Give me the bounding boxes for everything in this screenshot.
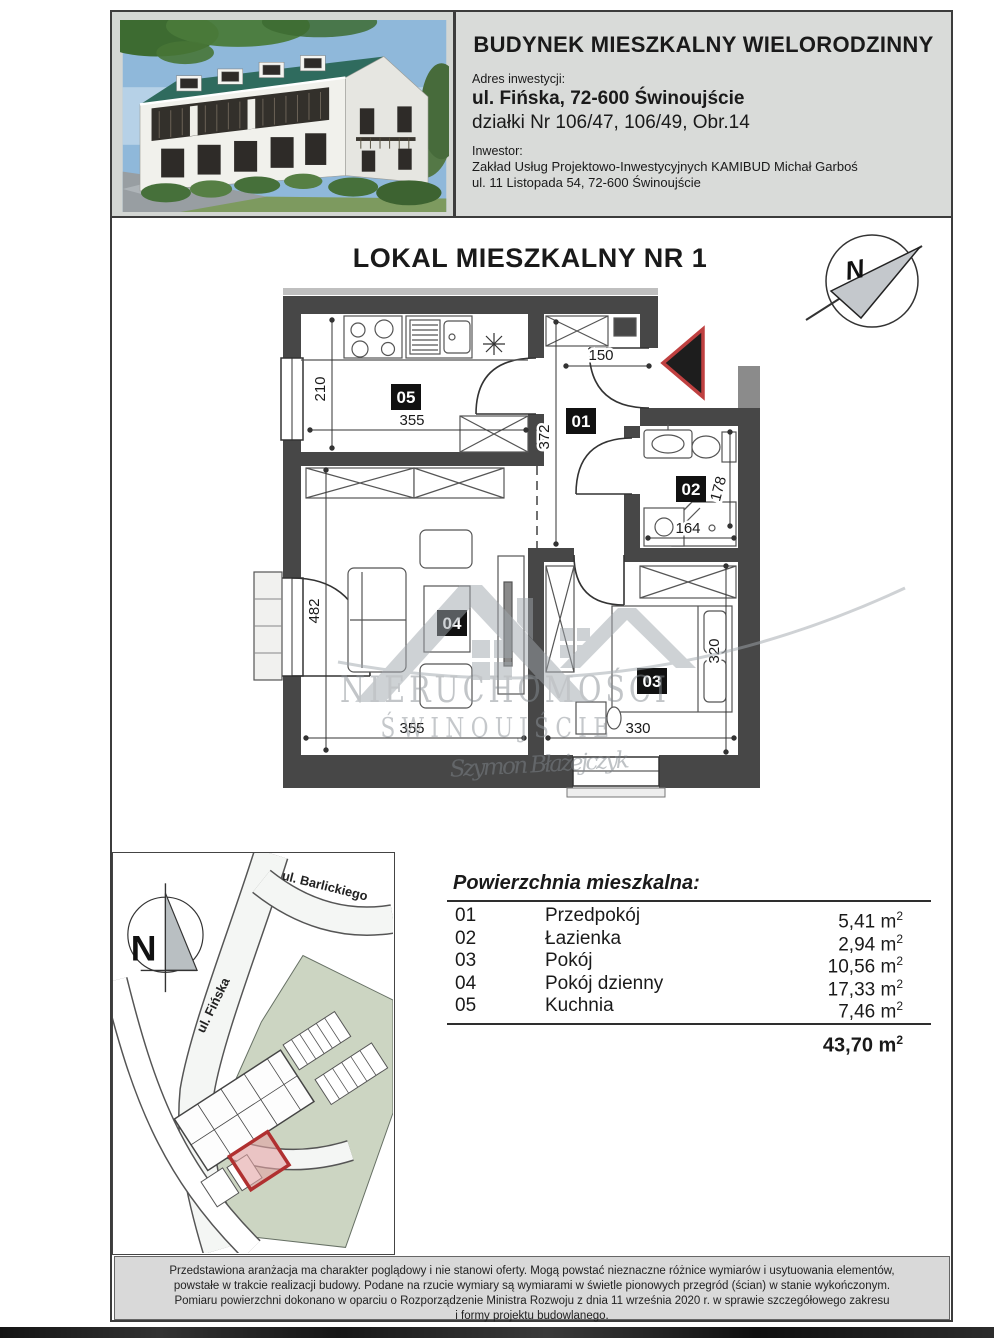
row-no: 05 <box>455 995 476 1018</box>
floor-plan: 355 210 150 372 164 178 482 355 330 320 … <box>110 218 953 858</box>
table-row: 04 Pokój dzienny 17,33 m2 <box>447 973 931 996</box>
disclaimer: Przedstawiona aranżacja ma charakter pog… <box>114 1256 950 1320</box>
dim-kitchen-height: 210 <box>312 376 329 401</box>
row-no: 02 <box>455 928 476 951</box>
row-name: Kuchnia <box>545 995 614 1018</box>
page: BUDYNEK MIESZKALNY WIELORODZINNY Adres i… <box>0 0 994 1338</box>
site-plan: N ul. Barlickiego ul. Fińska <box>113 853 393 1253</box>
area-table: Powierzchnia mieszkalna: 01 Przedpokój 5… <box>447 872 931 1055</box>
disclaimer-line: i formy projektu budowlanego. <box>115 1309 949 1324</box>
room-label-hall: 01 <box>572 412 591 431</box>
investor-label: Inwestor: <box>472 144 951 158</box>
scan-edge-strip <box>0 1327 994 1338</box>
address-plots: działki Nr 106/47, 106/49, Obr.14 <box>472 112 951 134</box>
row-no: 01 <box>455 905 476 928</box>
disclaimer-line: Pomiaru powierzchni dokonano w oparciu o… <box>115 1294 949 1309</box>
row-name: Pokój <box>545 950 593 973</box>
dim-bedroom-height: 320 <box>706 638 723 663</box>
table-row: 01 Przedpokój 5,41 m2 <box>447 905 931 928</box>
room-label-bath: 02 <box>682 480 701 499</box>
compass-site: N <box>128 883 203 992</box>
dim-bedroom-width: 330 <box>625 720 650 737</box>
dim-entry-width: 150 <box>588 347 613 364</box>
hall-storage <box>546 316 636 346</box>
header-cell: BUDYNEK MIESZKALNY WIELORODZINNY Adres i… <box>455 10 953 218</box>
building-photo-cell <box>110 10 455 218</box>
dim-kitchen-width: 355 <box>399 412 424 429</box>
entrance-arrow-icon <box>663 329 703 397</box>
disclaimer-line: powstałe w trakcie realizacji budowy. Po… <box>115 1279 949 1294</box>
row-name: Łazienka <box>545 928 621 951</box>
watermark: NIERUCHOMOŚCI ŚWINOUJŚCIE Szymon Błażejc… <box>338 585 905 783</box>
disclaimer-line: Przedstawiona aranżacja ma charakter pog… <box>115 1264 949 1279</box>
row-name: Pokój dzienny <box>545 973 663 996</box>
room-label-kitchen: 05 <box>397 388 416 407</box>
row-no: 03 <box>455 950 476 973</box>
row-area: 7,46 m2 <box>838 995 903 1024</box>
investor-name: Zakład Usług Projektowo-Inwestycyjnych K… <box>472 159 951 174</box>
watermark-line1: NIERUCHOMOŚCI <box>340 669 670 711</box>
dim-hall-height: 372 <box>536 424 553 449</box>
site-compass-n-label: N <box>131 928 157 968</box>
investor-address: ul. 11 Listopada 54, 72-600 Świnoujście <box>472 175 951 190</box>
watermark-line2: ŚWINOUJŚCIE <box>381 710 616 744</box>
dim-bath-width: 164 <box>675 520 700 537</box>
document-title: BUDYNEK MIESZKALNY WIELORODZINNY <box>464 32 943 58</box>
table-row: 02 Łazienka 2,94 m2 <box>447 928 931 951</box>
address-label: Adres inwestycji: <box>472 72 951 86</box>
building-photo <box>120 20 449 212</box>
table-row: 03 Pokój 10,56 m2 <box>447 950 931 973</box>
dim-living-height: 482 <box>306 598 323 623</box>
site-plan-box: N ul. Barlickiego ul. Fińska <box>112 852 395 1255</box>
compass-n-label: N <box>843 253 868 286</box>
table-row: 05 Kuchnia 7,46 m2 <box>447 995 931 1018</box>
row-name: Przedpokój <box>545 905 640 928</box>
area-total: 43,70 m2 <box>447 1025 931 1055</box>
address-street: ul. Fińska, 72-600 Świnoujście <box>472 88 951 110</box>
row-no: 04 <box>455 973 476 996</box>
dim-bath-height: 178 <box>707 475 730 504</box>
area-table-title: Powierzchnia mieszkalna: <box>447 872 931 895</box>
fridge-icon <box>483 333 505 355</box>
compass-plan: N <box>806 235 922 327</box>
